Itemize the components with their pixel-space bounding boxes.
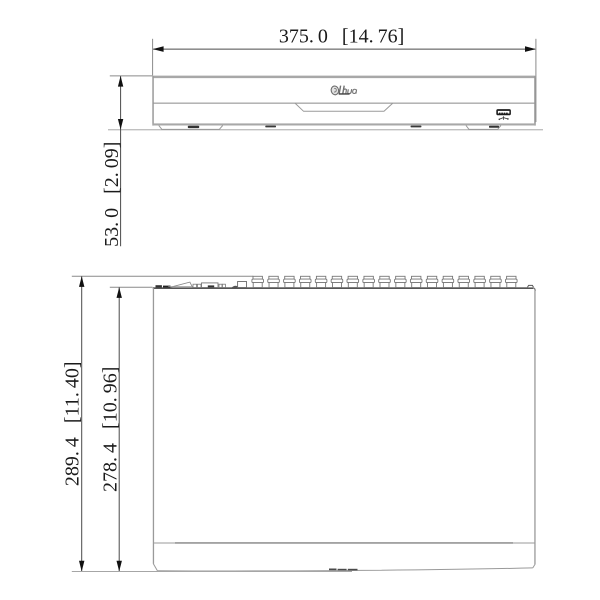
svg-text:278. 4 [10. 96]: 278. 4 [10. 96] <box>100 367 122 492</box>
svg-text:53. 0 [2. 09]: 53. 0 [2. 09] <box>101 142 123 247</box>
svg-text:375. 0 [14. 76]: 375. 0 [14. 76] <box>279 26 404 48</box>
svg-text:289. 4 [11. 40]: 289. 4 [11. 40] <box>62 362 84 487</box>
